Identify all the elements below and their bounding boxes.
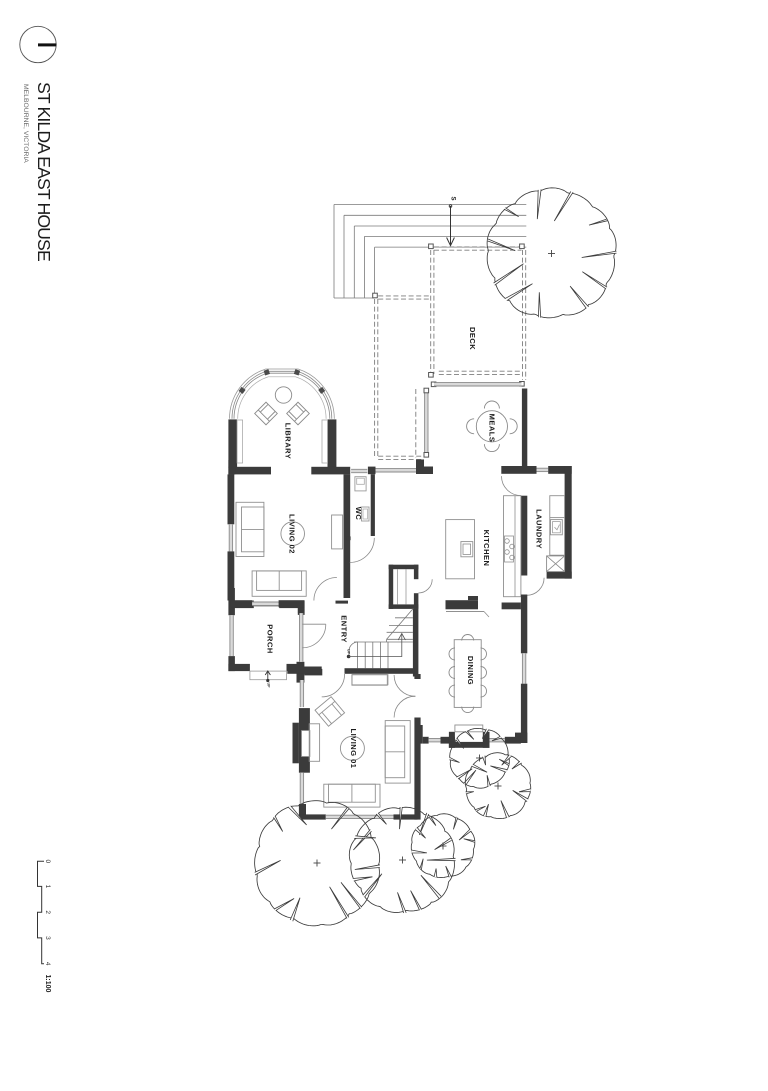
svg-text:0: 0 [44,860,51,864]
svg-text:4: 4 [44,962,51,966]
svg-text:1: 1 [44,885,51,889]
svg-text:LAUNDRY: LAUNDRY [535,509,544,549]
svg-text:LIBRARY: LIBRARY [284,423,293,460]
svg-text:1:100: 1:100 [44,975,51,993]
svg-text:WC: WC [354,507,363,521]
svg-text:UP: UP [347,649,351,655]
svg-text:LIVING 02: LIVING 02 [288,514,297,554]
svg-text:MEALS: MEALS [488,414,497,443]
svg-text:2: 2 [44,910,51,914]
svg-text:LIVING 01: LIVING 01 [349,729,358,769]
svg-text:S: S [450,197,456,201]
svg-text:PORCH: PORCH [266,624,275,654]
svg-text:UP: UP [267,683,271,689]
svg-text:MELBOURNE, VICTORIA: MELBOURNE, VICTORIA [22,84,29,163]
svg-text:ENTRY: ENTRY [340,615,349,643]
svg-text:DINING: DINING [466,656,475,685]
svg-text:ST KILDA EAST HOUSE: ST KILDA EAST HOUSE [34,82,54,262]
svg-text:KITCHEN: KITCHEN [482,530,491,567]
svg-text:3: 3 [44,936,51,940]
svg-text:DECK: DECK [468,327,477,350]
